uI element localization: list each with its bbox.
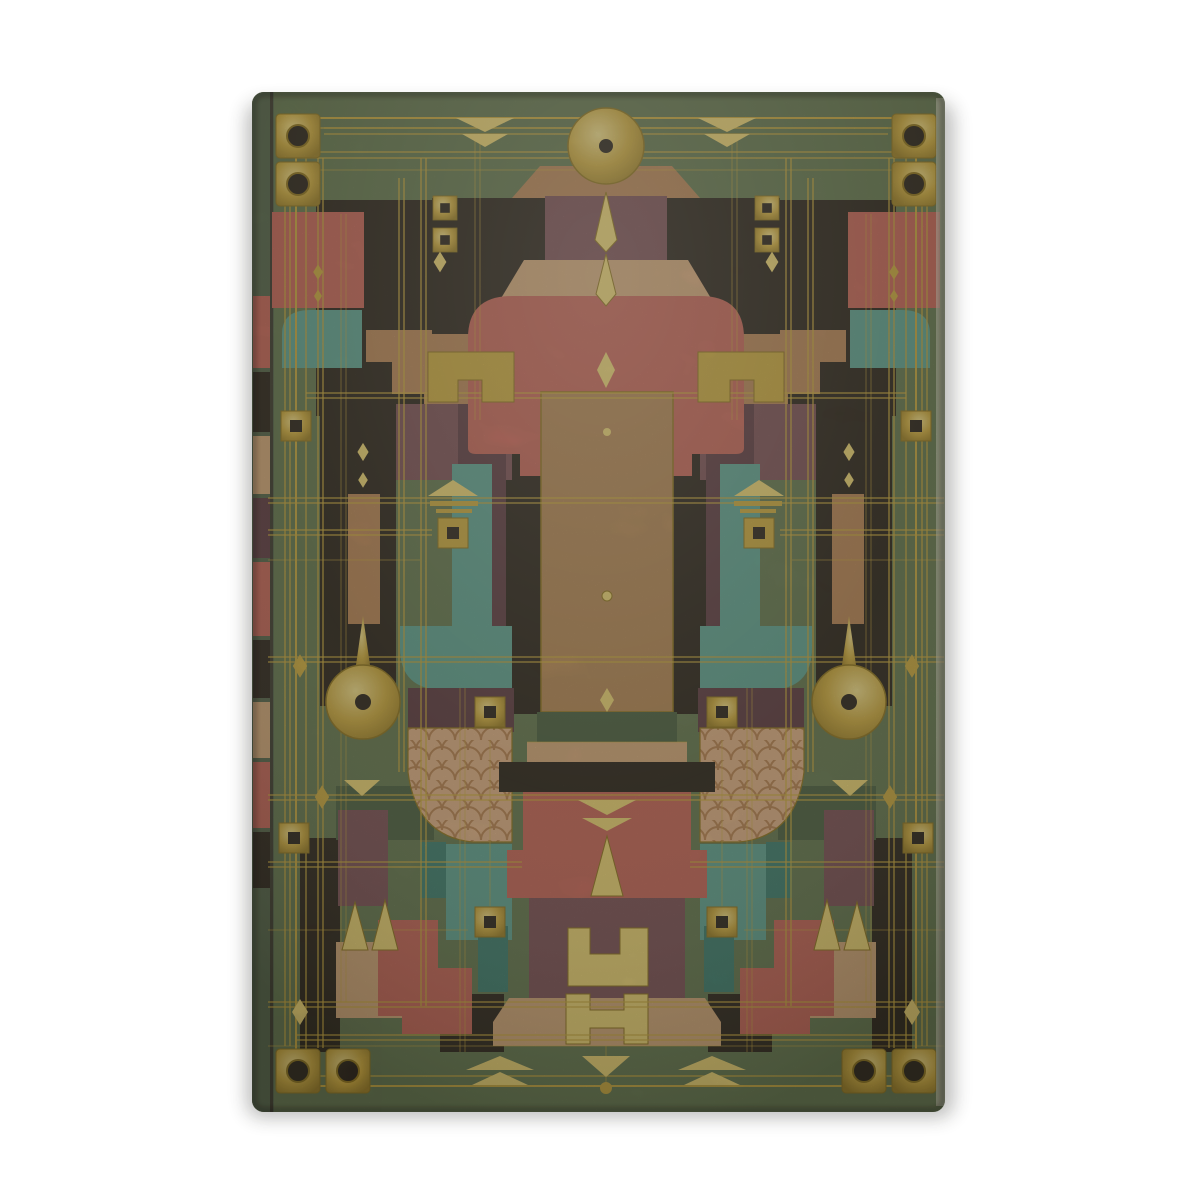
photo-stage: Hardcover journal photographed upright o…: [0, 0, 1200, 1200]
journal-photo: [0, 0, 1200, 1200]
texture-overlays: [252, 92, 945, 1112]
journal-book: [252, 0, 945, 1112]
